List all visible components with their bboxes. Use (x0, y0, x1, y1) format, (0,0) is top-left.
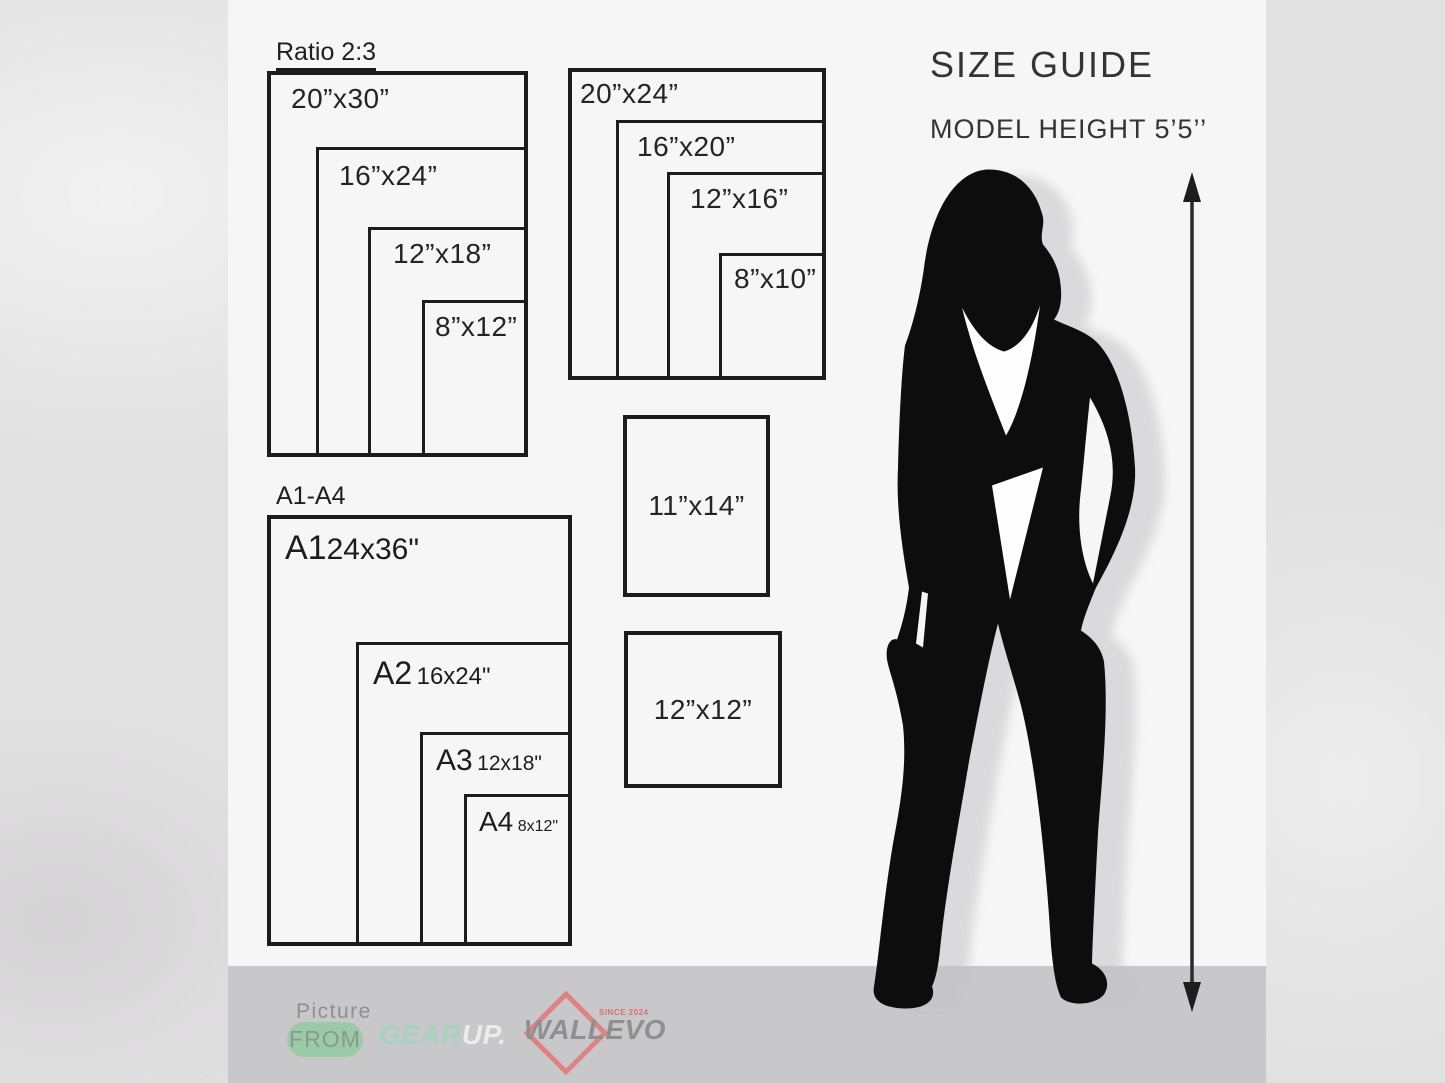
gearup-logo-gear: GEAR (379, 1019, 462, 1050)
size-guide-image: Ratio 2:3 20”x30” 16”x24” 12”x18” 8”x12”… (0, 0, 1445, 1083)
size-box-12x12: 12”x12” (624, 631, 782, 788)
size-box-label: A2 16x24" (373, 655, 491, 692)
a-size-inches: 16x24" (417, 663, 491, 690)
from-badge-label: FROM (289, 1026, 361, 1053)
size-box-label: 12”x16” (690, 183, 788, 215)
ratio-2-3-heading: Ratio 2:3 (276, 38, 376, 71)
a-size-inches: 8x12" (518, 818, 558, 835)
size-box-8x12: 8”x12” (422, 300, 528, 457)
model-height-label: MODEL HEIGHT 5’5’’ (930, 114, 1207, 145)
size-box-label: 16”x20” (637, 131, 735, 163)
size-box-label: 8”x12” (435, 311, 517, 343)
page-title: SIZE GUIDE (930, 44, 1154, 86)
size-box-label: A4 8x12" (479, 806, 558, 838)
size-box-label: 12”x12” (654, 694, 752, 726)
a-size-name: A1 (285, 529, 327, 567)
arrow-head-down (1183, 982, 1201, 1012)
a-size-name: A3 (436, 744, 473, 777)
picture-from-logo-badge: FROM (287, 1022, 363, 1057)
size-box-label: 20”x30” (291, 83, 389, 115)
a-size-name: A2 (373, 655, 412, 691)
height-arrow-icon (1179, 172, 1205, 1012)
size-box-a4: A4 8x12" (464, 794, 572, 946)
size-box-label: 12”x18” (393, 238, 491, 270)
size-box-11x14: 11”x14” (623, 415, 770, 597)
size-box-label: 20”x24” (580, 78, 678, 110)
gearup-logo-up: UP. (462, 1019, 507, 1050)
a-size-name: A4 (479, 806, 513, 837)
size-box-label: A124x36" (285, 529, 419, 568)
picture-from-logo-text: Picture (296, 1000, 372, 1024)
a-size-inches: 24x36" (327, 533, 419, 566)
size-box-label: A3 12x18" (436, 744, 542, 778)
a-series-heading: A1-A4 (276, 482, 345, 511)
arrow-head-up (1183, 172, 1201, 202)
size-box-label: 16”x24” (339, 160, 437, 192)
gearup-logo: GEARUP. (379, 1019, 506, 1051)
model-silhouette (852, 166, 1172, 1014)
size-box-label: 11”x14” (648, 490, 744, 522)
size-box-8x10: 8”x10” (719, 253, 826, 380)
size-box-label: 8”x10” (734, 263, 816, 295)
a-size-inches: 12x18" (477, 752, 542, 775)
wallevo-logo: WALLEVO (524, 1014, 666, 1046)
